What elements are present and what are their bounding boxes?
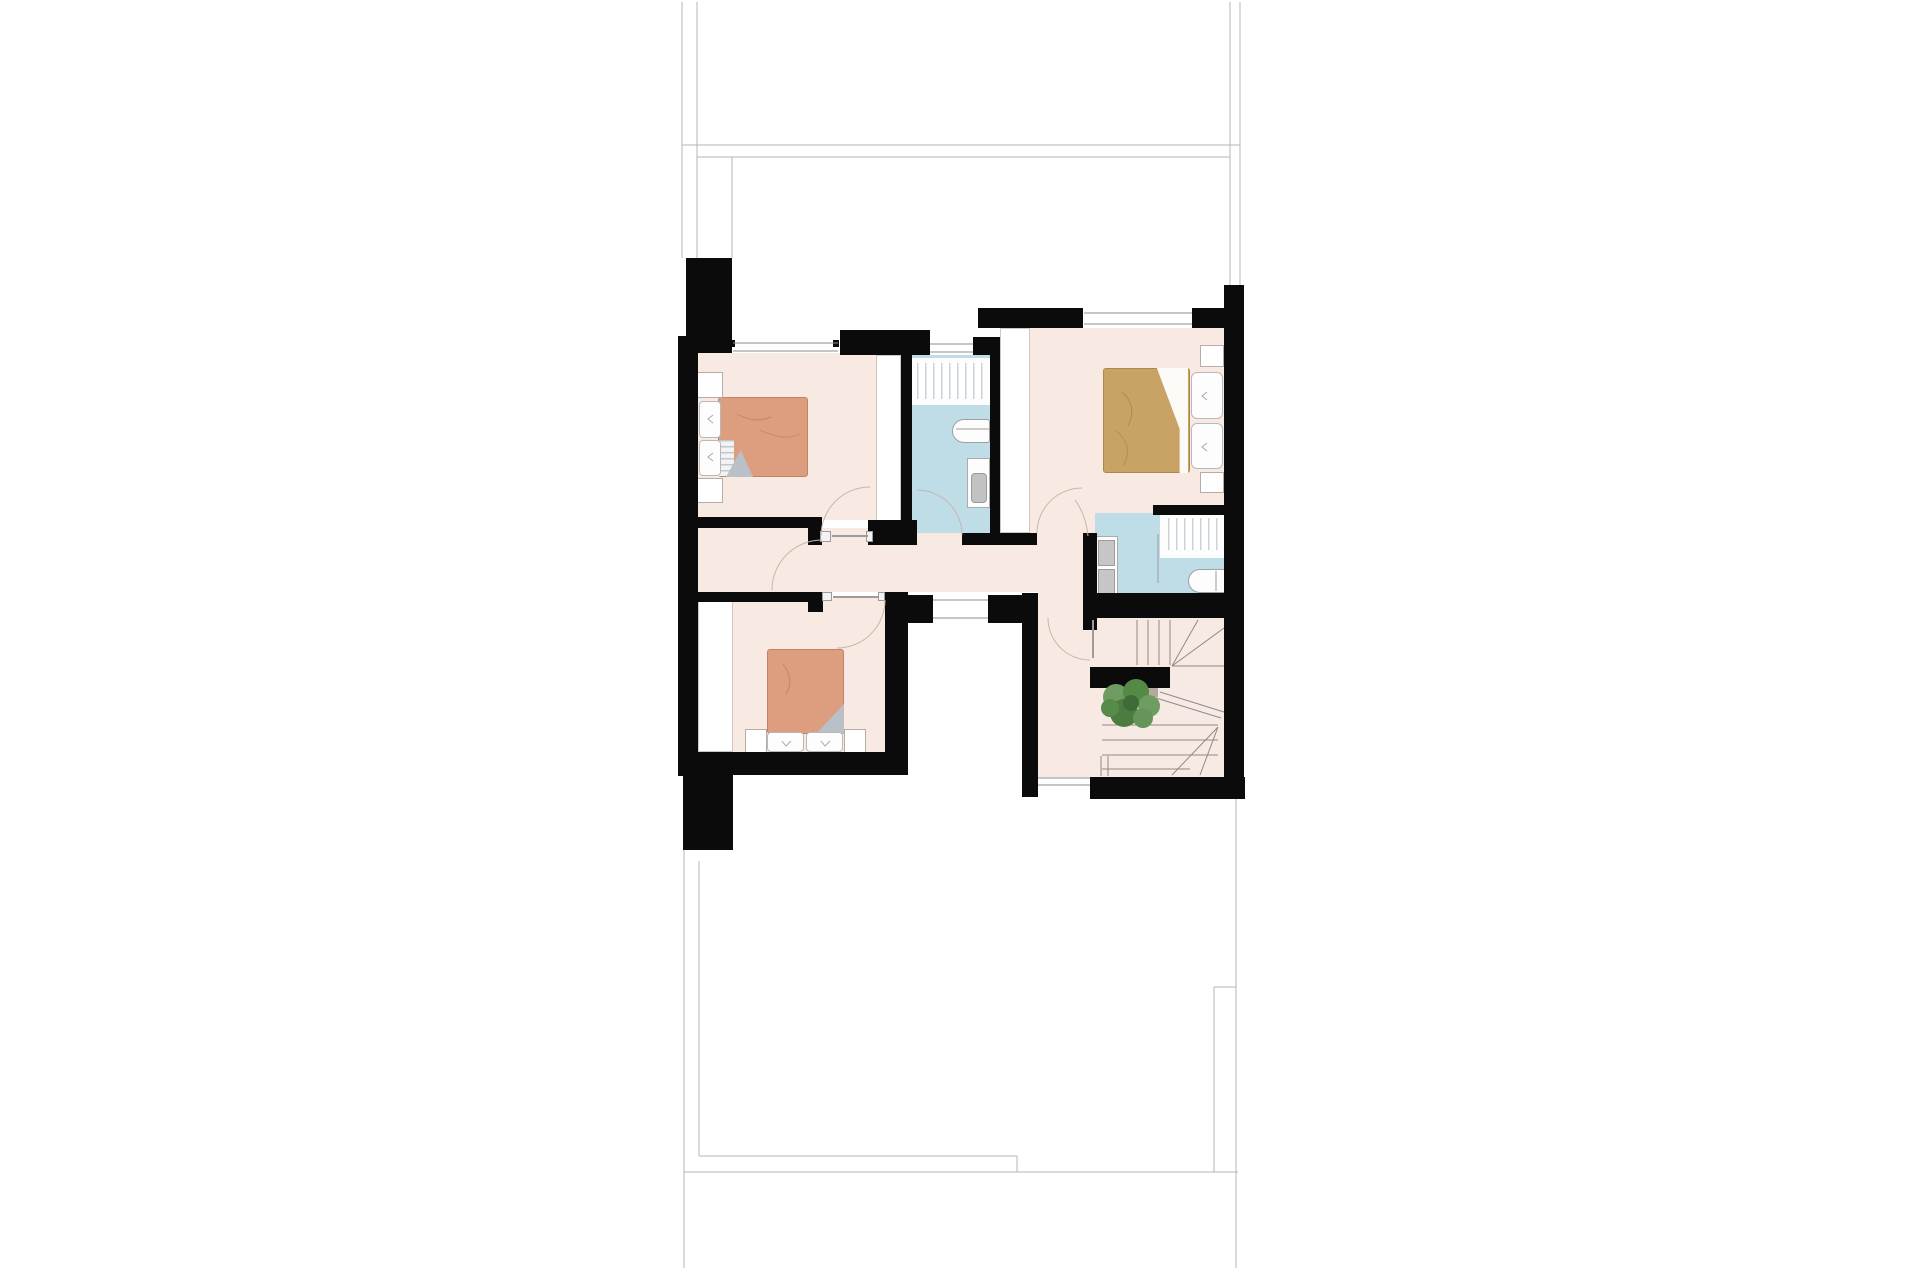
wall-bed2-south [962, 533, 1037, 545]
bed-2-pillow-b [1191, 423, 1223, 469]
wall-stair-south [1090, 777, 1245, 799]
window-bedroom-1-tick-a [729, 340, 735, 347]
toilet-2 [1188, 569, 1228, 593]
bed-3-pillow-a [767, 732, 804, 752]
door-frame-bed1-a [820, 531, 831, 542]
wall-bed2-top-a [978, 308, 1083, 328]
wall-stair-stub [1090, 667, 1170, 688]
floor-plan [0, 0, 1920, 1280]
wall-corridor-south-a [885, 595, 933, 623]
bedroom-2-wardrobe [1000, 328, 1030, 533]
wall-bath1-left [901, 353, 912, 537]
bedroom-3-wardrobe [698, 598, 733, 752]
bed-1-nightstand-a [697, 372, 723, 398]
wall-bath1-right [990, 337, 1000, 535]
vanity-2-sink-b [1098, 569, 1115, 595]
vanity-2-sink-a [1098, 540, 1115, 566]
bed-2-nightstand-b [1200, 472, 1224, 493]
bed-1-pillow-b [699, 440, 721, 476]
door-frame-bed3-a [822, 592, 832, 601]
wall-top-a [695, 331, 732, 353]
stairwell-floor [1097, 618, 1224, 777]
window-bedroom-2 [1084, 309, 1192, 327]
wall-bath1-entry [868, 520, 917, 545]
stair-planter [1108, 688, 1158, 697]
wall-bed3-south [698, 752, 908, 775]
door-frame-bed3-b [878, 592, 885, 601]
bed-3-nightstand-b [844, 729, 866, 753]
window-bedroom-1-tick-b [833, 340, 839, 347]
bed-1-nightstand-b [697, 478, 723, 503]
door-frame-bed1-b [866, 531, 873, 542]
wall-right [1224, 285, 1244, 799]
wall-pillar-top-left [686, 258, 732, 336]
wall-bath2-top [1153, 505, 1224, 515]
wall-hall-west [1022, 593, 1038, 797]
bed-1-pillow-a [699, 401, 721, 438]
wall-bed3-north-post [808, 592, 823, 612]
shower-2-grate [1168, 518, 1218, 550]
wall-bath2-bottom [1093, 593, 1224, 618]
bed-2-nightstand-a [1200, 345, 1224, 367]
wall-pillar-bottom-left [683, 767, 733, 850]
bed-3-nightstand-a [745, 729, 767, 753]
bed-2-pillow-a [1191, 372, 1223, 419]
window-bedroom-1 [732, 334, 835, 353]
shower-1-grate [917, 363, 984, 399]
toilet-1-bowl [971, 473, 987, 503]
wall-bed1-south [698, 517, 808, 528]
window-bathroom-1 [930, 334, 973, 355]
washbasin-1 [952, 419, 990, 443]
wall-top-b [840, 330, 930, 355]
plan-linework [0, 0, 1920, 1280]
window-hall [1038, 777, 1090, 797]
bed-3-pillow-b [806, 732, 843, 752]
wall-left [678, 336, 698, 776]
bedroom-1-wardrobe [876, 355, 901, 537]
window-corridor [933, 596, 988, 622]
wall-bed3-north [698, 592, 808, 602]
